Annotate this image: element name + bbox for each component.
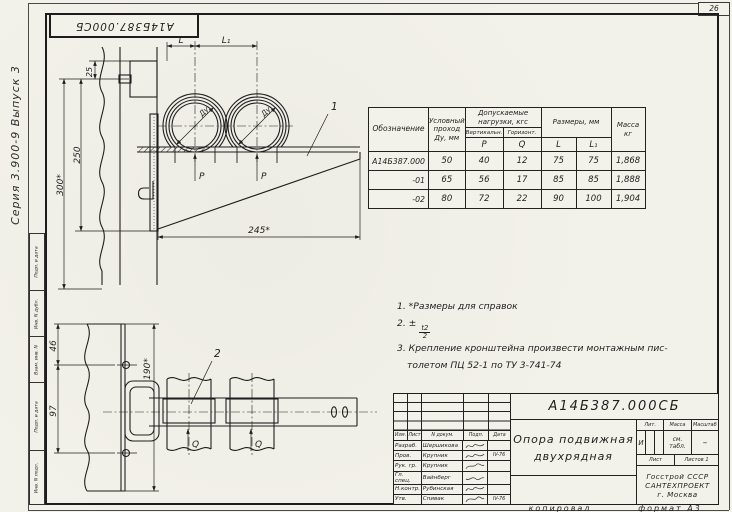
- signature-mark: [465, 485, 485, 493]
- signature-mark: [465, 495, 485, 503]
- mass-label: Масса: [664, 420, 691, 430]
- note-2-prefix: 2. ±: [397, 318, 416, 329]
- title-block: Изм. Лист N докум. Подп. Дата Разраб. Ше…: [393, 393, 719, 505]
- cell-du: 50: [429, 152, 466, 171]
- signature-cell: [463, 495, 488, 504]
- callout-1-leader: [307, 114, 328, 156]
- front-view: [100, 47, 360, 285]
- col-list: Лист: [408, 431, 422, 440]
- dim-label-190: 190*: [143, 358, 153, 380]
- signature-cell: [463, 472, 488, 484]
- signature-mark: [465, 442, 485, 450]
- cell-l: 90: [541, 190, 576, 209]
- col-L: L: [541, 138, 576, 152]
- cell-designation: -01: [369, 171, 429, 190]
- extension-lines-front: [58, 42, 167, 289]
- lit-mass-scale-values: И см. табл. –: [637, 431, 718, 455]
- dim-label-25: 25: [85, 67, 94, 77]
- wall-plate-plan: [87, 324, 125, 491]
- mass-value-line2: табл.: [664, 443, 691, 450]
- load-label-P1: P: [199, 172, 205, 182]
- mass-value: см. табл.: [664, 431, 692, 454]
- scale-value: –: [692, 431, 718, 454]
- hook-detail: [139, 181, 154, 199]
- signature-row: Утв. Спивак IV-76: [394, 495, 510, 504]
- scan-border-right: [729, 3, 730, 510]
- lit-value: И: [637, 431, 646, 454]
- role: Н.контр.: [394, 485, 422, 494]
- dim-label-46: 46: [49, 340, 59, 352]
- col-mass: Масса кг: [611, 108, 645, 152]
- margin-stamp-cell: Инв. N дубл.: [30, 291, 44, 337]
- person-name: Крупник: [422, 461, 464, 470]
- pipe-1-dia-label: Ду: [196, 104, 211, 119]
- table-row: -02 80 72 22 90 100 1,904: [369, 190, 646, 209]
- col-passage-line3: Ду, мм: [429, 134, 465, 142]
- signature-mark: [465, 462, 485, 470]
- lit-cells: И: [637, 431, 664, 454]
- doc-number: А14Б387.000СБ: [511, 394, 718, 420]
- cell-q: 12: [503, 152, 541, 171]
- org-line1: Госстрой СССР: [646, 472, 708, 481]
- col-loads-horizontal: Горизонт.: [503, 128, 541, 138]
- col-designation: Обозначение: [369, 108, 429, 152]
- margin-stamp-label: Инв. N подл.: [35, 462, 40, 492]
- dim-label-L: L: [178, 36, 183, 46]
- title-block-empty-cell: [511, 476, 636, 504]
- load-label-Q2: Q: [255, 440, 262, 450]
- wall-break-line: [100, 47, 105, 285]
- margin-stamp-column: Подп. и дата Инв. N дубл. Взам. инв. N П…: [29, 233, 45, 505]
- cell-p: 56: [465, 171, 503, 190]
- cell-l: 75: [541, 152, 576, 171]
- callout-2-label: 2: [214, 348, 221, 360]
- col-sign: Подп.: [464, 431, 489, 440]
- wall-break-line-plan: [85, 324, 90, 491]
- margin-stamp-label: Взам. инв. N: [35, 345, 40, 375]
- drawing-title: Опора подвижная двухрядная: [511, 420, 636, 476]
- signature-mark: [465, 474, 485, 482]
- lit-cell-2: [646, 431, 655, 454]
- role: Пров.: [394, 451, 422, 460]
- cell-designation: А14Б387.000: [369, 152, 429, 171]
- cell-mass: 1,868: [611, 152, 645, 171]
- sheet-row: Лист Листов 1: [637, 455, 718, 466]
- extension-lines-plan: [54, 324, 159, 491]
- date-cell: [488, 485, 510, 494]
- col-dims: Размеры, мм: [541, 108, 611, 138]
- org-line3: г. Москва: [657, 490, 697, 499]
- signature-cell: [463, 461, 488, 470]
- cell-l1: 85: [576, 171, 611, 190]
- drawing-sheet: 26 А14Б387.000СБ Серия 3.900-9 Выпуск 3 …: [0, 0, 732, 512]
- margin-stamp-cell: Подп. и дата: [30, 383, 44, 451]
- signature-mark: [465, 452, 485, 460]
- role: Разраб.: [394, 441, 422, 450]
- col-mass-line2: кг: [612, 130, 645, 138]
- plan-view: [85, 324, 357, 491]
- col-izm: Изм.: [394, 431, 408, 440]
- person-name: Крупник: [422, 451, 464, 460]
- signature-cell: [463, 441, 488, 450]
- col-date: Дата: [489, 431, 510, 440]
- table-row: -01 65 56 17 85 85 1,888: [369, 171, 646, 190]
- margin-stamp-cell: Инв. N подл.: [30, 451, 44, 504]
- note-2-fraction: t22: [419, 325, 430, 340]
- date-cell: IV-76: [488, 495, 510, 504]
- signature-row: Пров. Крупник IV-76: [394, 451, 510, 461]
- note-3-line2: толетом ПЦ 52-1 по ТУ 3-741-74: [397, 357, 719, 374]
- technical-drawing: L L₁ 25 250 300* 245* Ду Ду P P 1 46 97 …: [45, 13, 385, 505]
- lit-mass-scale-header: Лит. Масса Масштаб: [637, 420, 718, 431]
- scan-border-top: [28, 3, 729, 4]
- person-name: Спивак: [422, 495, 464, 504]
- spec-table: Обозначение Условный проход Ду, мм Допус…: [368, 107, 646, 209]
- notes: 1. *Размеры для справок 2. ±t22 3. Крепл…: [397, 298, 719, 374]
- page-number: 26: [709, 4, 719, 13]
- drawing-title-line1: Опора подвижная: [513, 431, 633, 448]
- cell-mass: 1,888: [611, 171, 645, 190]
- col-passage-line1: Условный: [429, 117, 465, 125]
- role: Гл. спец.: [394, 472, 422, 484]
- table-row: А14Б387.000 50 40 12 75 75 1,868: [369, 152, 646, 171]
- sheet-label: Лист: [637, 455, 675, 465]
- note-3-line1: 3. Крепление кронштейна произвести монта…: [397, 340, 719, 357]
- cell-du: 80: [429, 190, 466, 209]
- signature-rows: Разраб. Шершикова Пров. Крупник IV-76 Ру…: [394, 441, 510, 504]
- organization: Госстрой СССР САНТЕХПРОЕКТ г. Москва: [637, 466, 718, 504]
- signature-row: Н.контр. Рубинская: [394, 485, 510, 495]
- dim-label-L1: L₁: [222, 36, 231, 46]
- cell-q: 17: [503, 171, 541, 190]
- cell-q: 22: [503, 190, 541, 209]
- col-P: P: [465, 138, 503, 152]
- person-name: Рубинская: [422, 485, 464, 494]
- dim-label-97: 97: [49, 405, 59, 417]
- cell-mass: 1,904: [611, 190, 645, 209]
- signature-row: Гл. спец. Вайнберг: [394, 472, 510, 485]
- pipe-2-dia-label: Ду: [258, 104, 273, 119]
- signature-cell: [463, 451, 488, 460]
- margin-stamp-cell: Взам. инв. N: [30, 337, 44, 383]
- lit-label: Лит.: [637, 420, 664, 430]
- load-label-Q1: Q: [192, 440, 199, 450]
- signature-row: Рук. гр. Крупник: [394, 461, 510, 471]
- format-label: формат А3: [615, 504, 725, 512]
- date-cell: IV-76: [488, 451, 510, 460]
- cell-du: 65: [429, 171, 466, 190]
- lit-cell-3: [655, 431, 663, 454]
- margin-stamp-label: Инв. N дубл.: [35, 298, 40, 328]
- margin-stamp-label: Подп. и дата: [35, 401, 40, 432]
- scale-label: Масштаб: [692, 420, 718, 430]
- dim-label-245: 245*: [248, 226, 270, 236]
- callout-1-label: 1: [331, 101, 338, 113]
- title-block-left: Изм. Лист N докум. Подп. Дата Разраб. Ше…: [394, 394, 511, 504]
- note-2: 2. ±t22: [397, 315, 719, 340]
- cell-l1: 75: [576, 152, 611, 171]
- cell-p: 40: [465, 152, 503, 171]
- dim-label-300: 300*: [56, 174, 66, 196]
- date-cell: [488, 441, 510, 450]
- signature-cell: [463, 485, 488, 494]
- date-cell: [488, 472, 510, 484]
- margin-stamp-label: Подп. и дата: [35, 246, 40, 277]
- sheets-label: Листов 1: [675, 455, 718, 465]
- dim-label-250: 250: [73, 146, 83, 163]
- margin-stamp-cell: Подп. и дата: [30, 234, 44, 291]
- col-passage-line2: проход: [429, 125, 465, 133]
- col-loads-vertical: Вертикальн.: [465, 128, 503, 138]
- revision-grid: [394, 394, 510, 431]
- col-L1: L₁: [576, 138, 611, 152]
- role: Утв.: [394, 495, 422, 504]
- signature-header-row: Изм. Лист N докум. Подп. Дата: [394, 431, 510, 441]
- cell-p: 72: [465, 190, 503, 209]
- col-mass-line1: Масса: [612, 121, 645, 129]
- bracket-diagonal: [158, 152, 360, 229]
- series-handwritten-note: Серия 3.900-9 Выпуск 3: [9, 49, 27, 241]
- cell-designation: -02: [369, 190, 429, 209]
- drawing-title-line2: двухрядная: [534, 448, 613, 465]
- col-loads: Допускаемые нагрузки, кгс: [465, 108, 541, 128]
- person-name: Вайнберг: [422, 472, 464, 484]
- cell-l: 85: [541, 171, 576, 190]
- fraction-denominator: 2: [419, 333, 430, 340]
- person-name: Шершикова: [422, 441, 464, 450]
- channel-bracket-inner: [130, 387, 154, 435]
- title-block-right: А14Б387.000СБ Опора подвижная двухрядная…: [511, 394, 718, 504]
- mass-value-line1: см.: [664, 436, 691, 443]
- anchor-box: [130, 61, 157, 97]
- date-cell: [488, 461, 510, 470]
- org-line2: САНТЕХПРОЕКТ: [645, 481, 710, 490]
- note-1: 1. *Размеры для справок: [397, 298, 719, 315]
- dimension-labels: L L₁ 25 250 300* 245* Ду Ду P P 1 46 97 …: [49, 36, 338, 450]
- cell-l1: 100: [576, 190, 611, 209]
- role: Рук. гр.: [394, 461, 422, 470]
- col-doc: N докум.: [422, 431, 464, 440]
- col-Q: Q: [503, 138, 541, 152]
- load-label-P2: P: [261, 172, 267, 182]
- signature-row: Разраб. Шершикова: [394, 441, 510, 451]
- col-passage: Условный проход Ду, мм: [429, 108, 466, 152]
